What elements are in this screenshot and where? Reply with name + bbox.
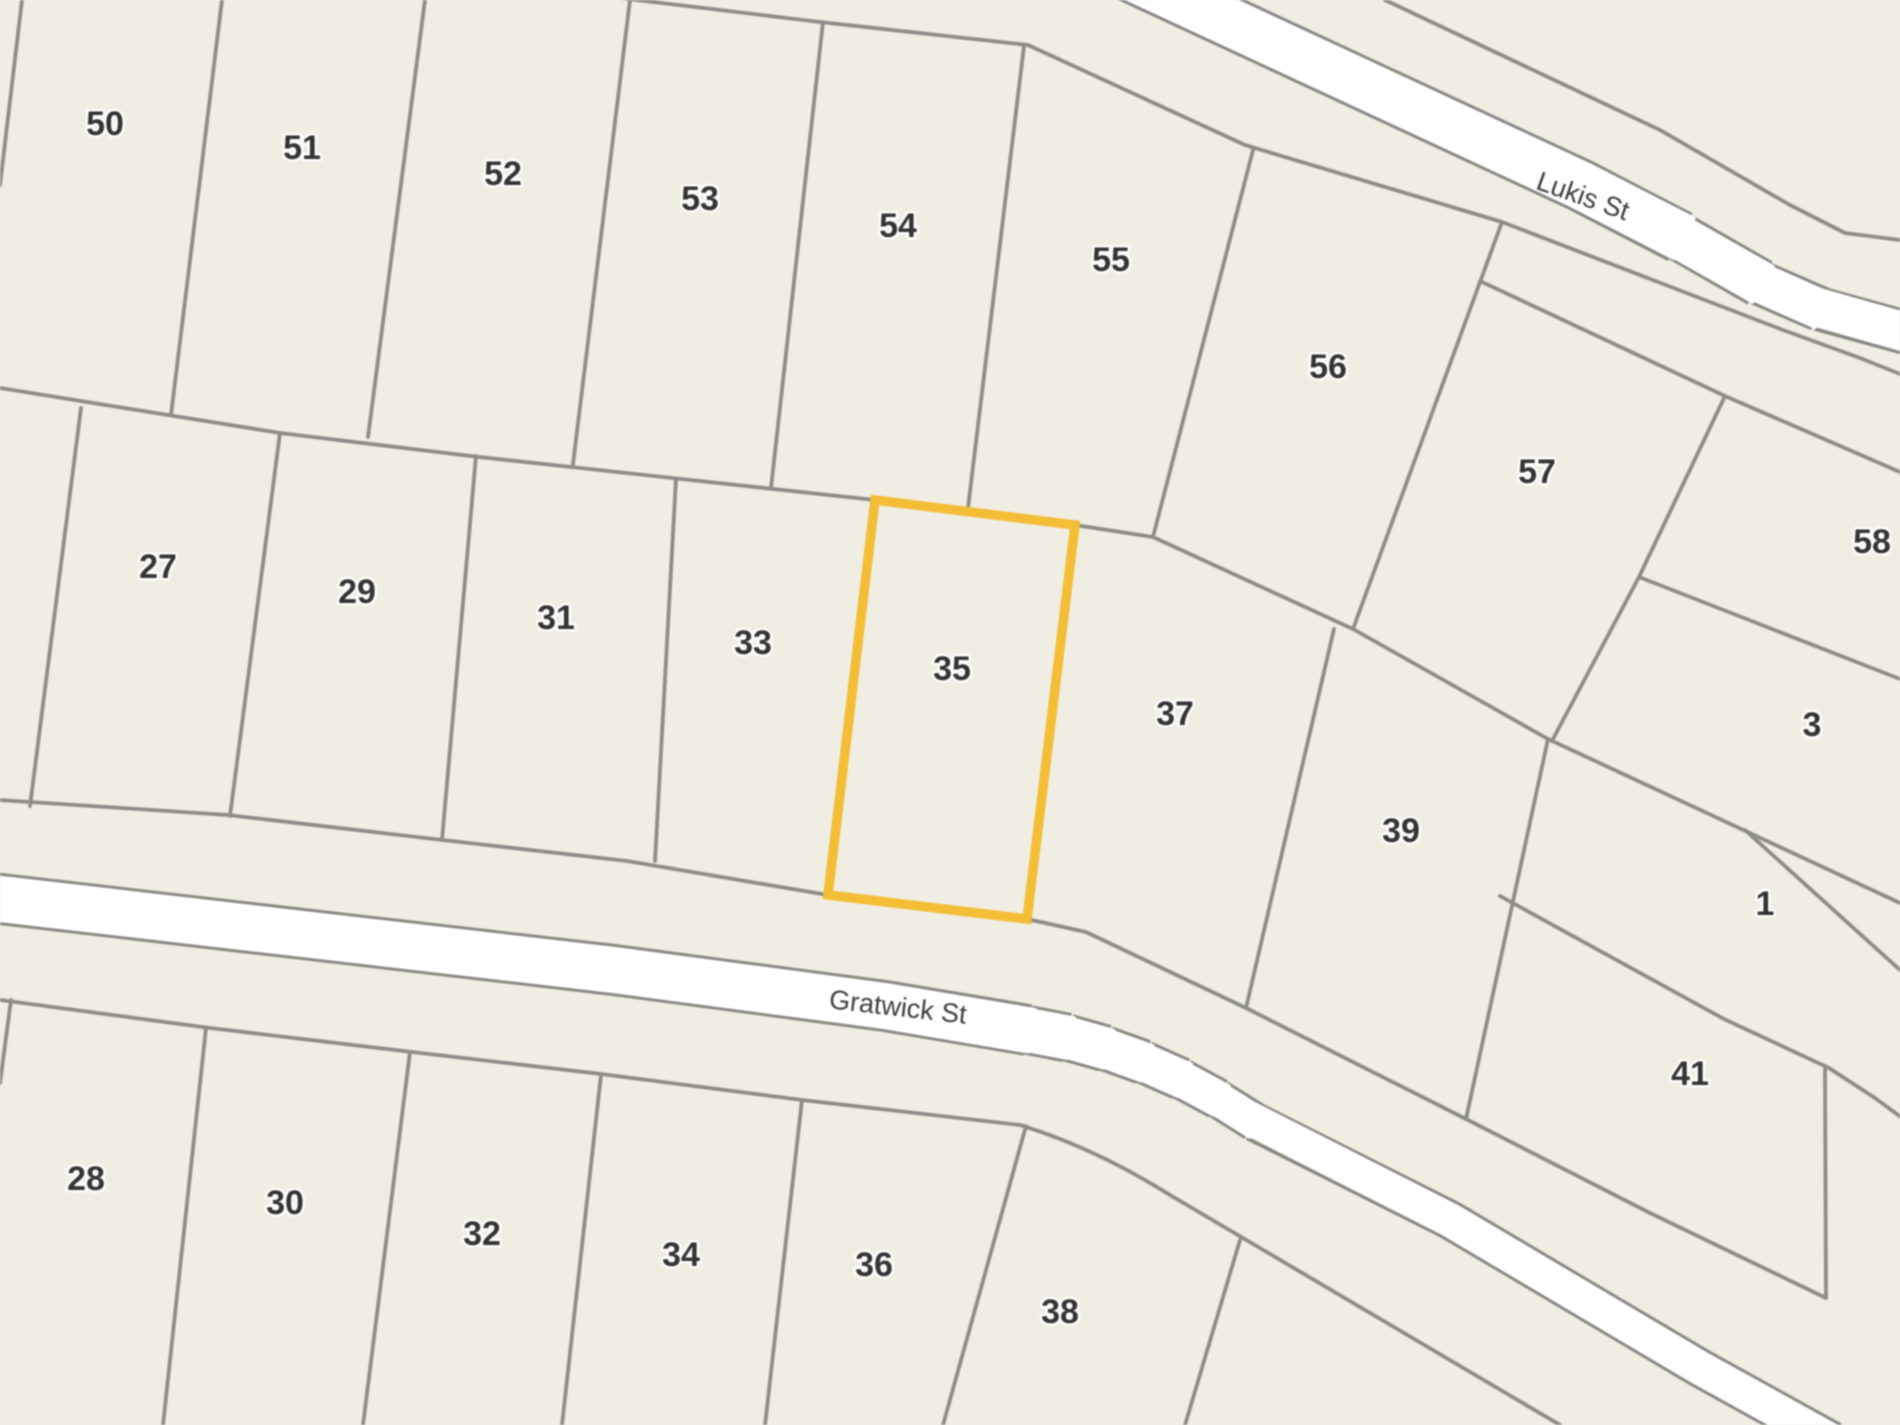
svg-text:28: 28 [67,1160,105,1198]
svg-text:1: 1 [1756,885,1775,923]
svg-text:58: 58 [1853,523,1891,561]
svg-text:38: 38 [1041,1293,1079,1331]
svg-text:29: 29 [338,573,376,611]
svg-text:50: 50 [86,105,124,143]
svg-text:55: 55 [1092,241,1130,279]
svg-text:37: 37 [1156,695,1194,733]
svg-text:54: 54 [879,207,917,245]
svg-text:51: 51 [283,129,321,167]
svg-text:39: 39 [1382,812,1420,850]
svg-text:34: 34 [662,1236,700,1274]
svg-text:57: 57 [1518,453,1556,491]
svg-text:41: 41 [1671,1055,1709,1093]
svg-text:3: 3 [1803,706,1822,744]
svg-text:35: 35 [933,650,971,688]
svg-text:27: 27 [139,548,177,586]
svg-text:56: 56 [1309,348,1347,386]
svg-text:30: 30 [266,1184,304,1222]
svg-text:33: 33 [734,624,772,662]
svg-text:52: 52 [484,155,522,193]
svg-text:53: 53 [681,180,719,218]
svg-text:32: 32 [463,1215,501,1253]
svg-text:36: 36 [855,1246,893,1284]
svg-text:31: 31 [537,599,575,637]
